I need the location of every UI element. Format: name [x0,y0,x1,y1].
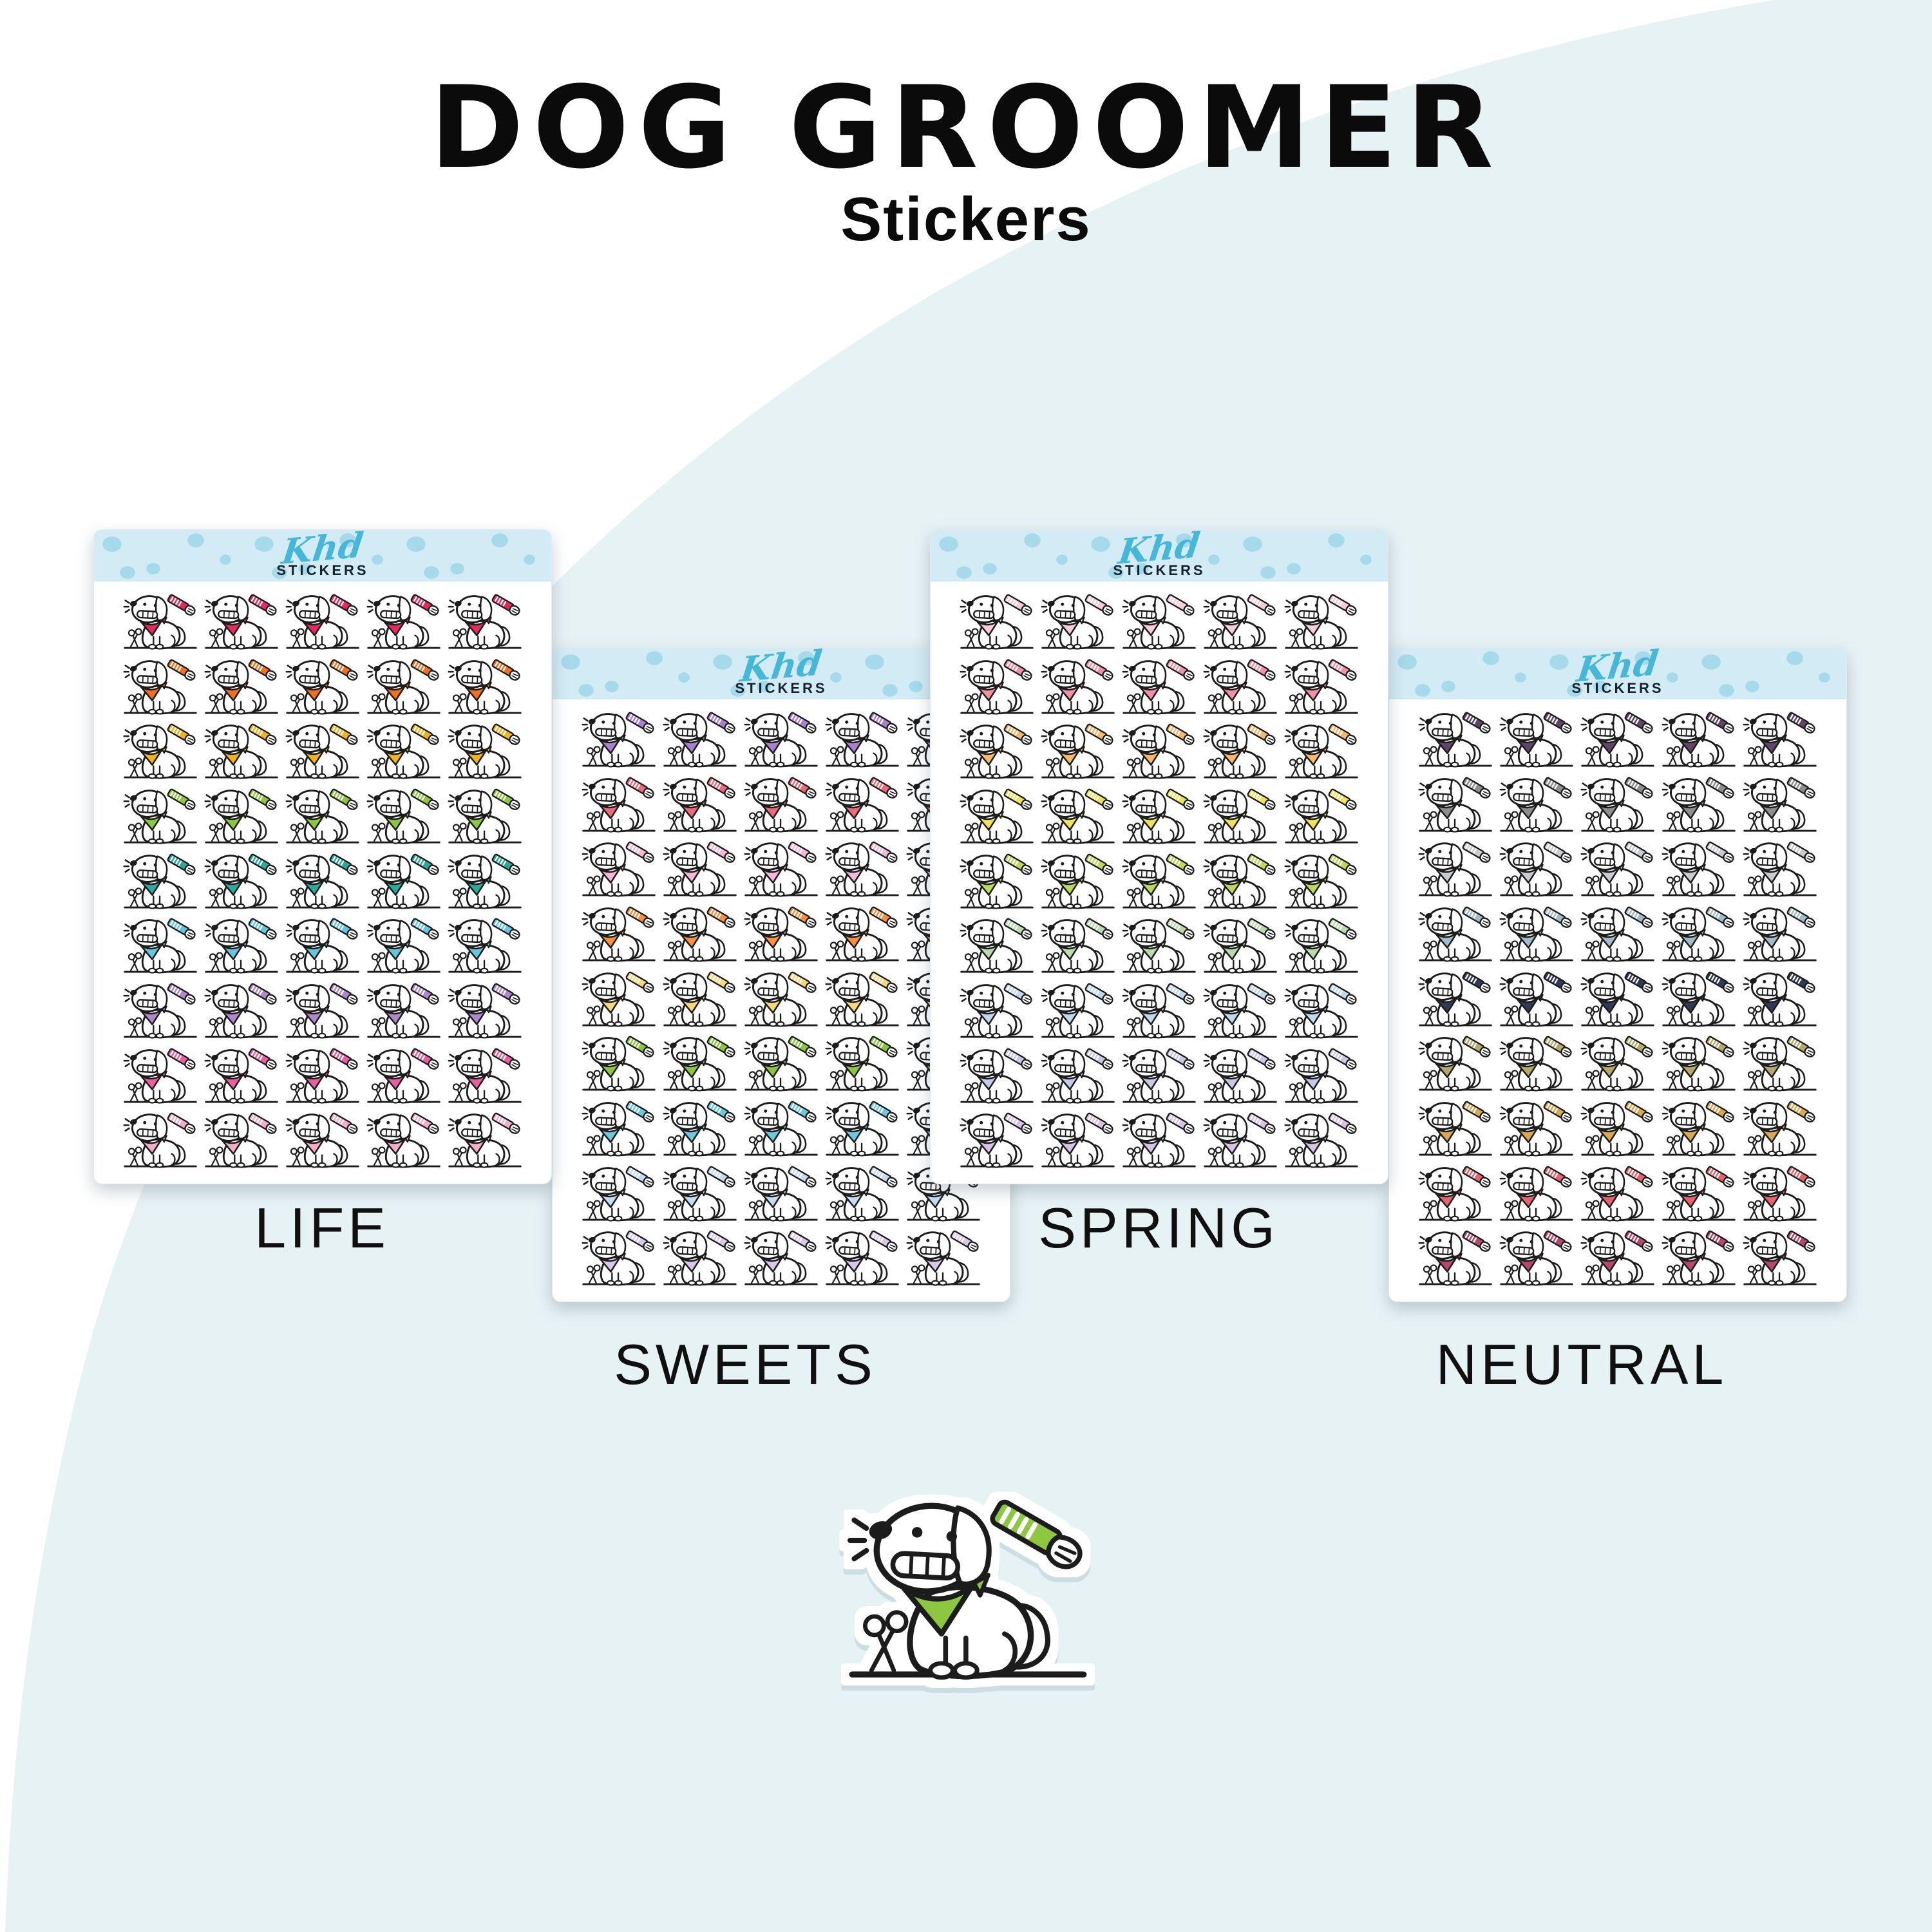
dog-groomer-sticker [282,1045,363,1110]
dog-groomer-sticker [444,1109,526,1174]
sheet-header-band: Khd STICKERS [931,530,1388,582]
dog-groomer-sticker [1200,980,1281,1045]
dog-groomer-sticker [120,850,201,915]
dog-groomer-sticker [578,1097,659,1162]
dog-groomer-sticker [741,1032,822,1097]
dog-groomer-sticker [659,1162,741,1227]
dog-groomer-sticker [1739,1162,1821,1227]
dog-groomer-sticker [1200,720,1281,785]
dog-groomer-sticker [1281,720,1362,785]
dog-groomer-sticker [1281,850,1362,915]
dog-groomer-sticker [120,980,201,1045]
dog-groomer-sticker [1496,968,1577,1033]
dog-groomer-sticker [120,1045,201,1110]
dog-groomer-sticker [363,914,444,980]
dog-groomer-sticker [822,968,903,1033]
dog-groomer-sticker [1037,1045,1119,1110]
dog-groomer-sticker [1119,785,1200,850]
dog-groomer-sticker [1415,708,1496,773]
dog-groomer-sticker [1739,773,1821,838]
dog-groomer-sticker [741,1227,822,1292]
dog-groomer-sticker [659,773,741,838]
dog-groomer-sticker [120,1109,201,1174]
dog-groomer-sticker [1200,656,1281,721]
dog-groomer-sticker [1658,773,1739,838]
dog-groomer-sticker [1658,1162,1739,1227]
dog-groomer-sticker [1415,773,1496,838]
dog-groomer-sticker [659,968,741,1033]
sheet-label-sweets: SWEETS [516,1332,974,1397]
dog-groomer-sticker [822,838,903,903]
sticker-grid-life [120,591,526,1174]
dog-groomer-sticker [1577,1227,1658,1292]
dog-groomer-sticker [1577,708,1658,773]
dog-groomer-sticker [1577,903,1658,968]
dog-groomer-sticker [956,1045,1037,1110]
dog-groomer-sticker [1281,1045,1362,1110]
dog-groomer-sticker [1119,720,1200,785]
dog-groomer-sticker [1496,1227,1577,1292]
dog-groomer-sticker [822,1162,903,1227]
dog-groomer-sticker [444,914,526,980]
dog-groomer-sticker [1037,850,1119,915]
dog-groomer-sticker [1577,968,1658,1033]
khd-logo: Khd [1575,647,1660,685]
dog-groomer-sticker [363,1045,444,1110]
dog-groomer-sticker [1577,1162,1658,1227]
dog-groomer-sticker [120,914,201,980]
dog-groomer-sticker [822,708,903,773]
dog-groomer-sticker [444,720,526,785]
dog-groomer-sticker [578,1227,659,1292]
dog-groomer-sticker [1119,1109,1200,1174]
dog-groomer-sticker [659,1097,741,1162]
hero-sticker [836,1492,1100,1698]
dog-groomer-sticker [659,838,741,903]
dog-groomer-sticker [956,850,1037,915]
sticker-sheet-neutral: Khd STICKERS [1388,647,1847,1302]
dog-groomer-sticker [201,720,282,785]
dog-groomer-sticker [201,1045,282,1110]
sticker-sheet-life: Khd STICKERS [93,529,552,1184]
dog-groomer-sticker [1037,785,1119,850]
dog-groomer-sticker [201,591,282,656]
dog-groomer-sticker [363,720,444,785]
sheet-label-spring: SPRING [930,1195,1387,1261]
dog-groomer-sticker [1496,1032,1577,1097]
dog-groomer-sticker [956,785,1037,850]
dog-groomer-sticker [1658,968,1739,1033]
dog-groomer-sticker [1496,1162,1577,1227]
dog-groomer-sticker [120,785,201,850]
dog-groomer-sticker [363,656,444,721]
dog-groomer-sticker [578,773,659,838]
dog-groomer-sticker [1037,914,1119,980]
dog-groomer-sticker [1119,914,1200,980]
dog-groomer-sticker [956,591,1037,656]
sheet-header-band: Khd STICKERS [94,530,551,582]
dog-groomer-sticker [956,720,1037,785]
dog-groomer-sticker [1658,1097,1739,1162]
dog-groomer-sticker [741,838,822,903]
dog-groomer-sticker [1037,720,1119,785]
dog-groomer-sticker [578,838,659,903]
dog-groomer-sticker [444,1045,526,1110]
dog-groomer-sticker [659,903,741,968]
dog-groomer-sticker [1415,968,1496,1033]
dog-groomer-sticker [1281,591,1362,656]
dog-groomer-sticker [444,850,526,915]
dog-groomer-sticker [1658,903,1739,968]
sticker-grid-sweets [578,708,984,1292]
dog-groomer-sticker [1496,838,1577,903]
dog-groomer-sticker [836,1492,1100,1695]
dog-groomer-sticker [1119,980,1200,1045]
dog-groomer-sticker [741,773,822,838]
dog-groomer-sticker [822,903,903,968]
dog-groomer-sticker [1496,903,1577,968]
dog-groomer-sticker [1739,708,1821,773]
dog-groomer-sticker [822,1097,903,1162]
dog-groomer-sticker [282,785,363,850]
dog-groomer-sticker [1577,1097,1658,1162]
dog-groomer-sticker [1415,838,1496,903]
dog-groomer-sticker [1281,656,1362,721]
dog-groomer-sticker [363,1109,444,1174]
dog-groomer-sticker [1037,591,1119,656]
sheet-label-neutral: NEUTRAL [1353,1332,1810,1397]
sticker-grid-neutral [1415,708,1821,1292]
dog-groomer-sticker [1577,838,1658,903]
dog-groomer-sticker [363,980,444,1045]
dog-groomer-sticker [201,656,282,721]
dog-groomer-sticker [282,980,363,1045]
dog-groomer-sticker [1281,1109,1362,1174]
dog-groomer-sticker [1200,591,1281,656]
dog-groomer-sticker [282,591,363,656]
dog-groomer-sticker [1658,1032,1739,1097]
dog-groomer-sticker [1119,591,1200,656]
dog-groomer-sticker [956,656,1037,721]
dog-groomer-sticker [1119,1045,1200,1110]
dog-groomer-sticker [1415,1162,1496,1227]
dog-groomer-sticker [578,968,659,1033]
dog-groomer-sticker [120,656,201,721]
dog-groomer-sticker [120,591,201,656]
dog-groomer-sticker [1496,708,1577,773]
dog-groomer-sticker [282,720,363,785]
khd-logo: Khd [739,647,824,685]
dog-groomer-sticker [1200,1045,1281,1110]
dog-groomer-sticker [1496,773,1577,838]
dog-groomer-sticker [741,1162,822,1227]
dog-groomer-sticker [1281,914,1362,980]
dog-groomer-sticker [1415,1032,1496,1097]
page-title: DOG GROOMER [0,62,1932,194]
dog-groomer-sticker [741,903,822,968]
page-subtitle: Stickers [0,184,1932,255]
dog-groomer-sticker [1281,980,1362,1045]
dog-groomer-sticker [201,850,282,915]
dog-groomer-sticker [363,591,444,656]
dog-groomer-sticker [822,773,903,838]
dog-groomer-sticker [282,914,363,980]
dog-groomer-sticker [1577,773,1658,838]
dog-groomer-sticker [1037,1109,1119,1174]
dog-groomer-sticker [1119,850,1200,915]
dog-groomer-sticker [1037,980,1119,1045]
dog-groomer-sticker [1415,1227,1496,1292]
dog-groomer-sticker [1658,1227,1739,1292]
dog-groomer-sticker [444,656,526,721]
dog-groomer-sticker [1739,1032,1821,1097]
dog-groomer-sticker [1658,708,1739,773]
dog-groomer-sticker [741,968,822,1033]
dog-groomer-sticker [201,785,282,850]
dog-groomer-sticker [741,1097,822,1162]
dog-groomer-sticker [578,1032,659,1097]
dog-groomer-sticker [1415,1097,1496,1162]
dog-groomer-sticker [1200,850,1281,915]
dog-groomer-sticker [1739,838,1821,903]
dog-groomer-sticker [201,980,282,1045]
dog-groomer-sticker [1119,656,1200,721]
dog-groomer-sticker [1037,656,1119,721]
dog-groomer-sticker [956,1109,1037,1174]
dog-groomer-sticker [120,720,201,785]
dog-groomer-sticker [1739,1227,1821,1292]
dog-groomer-sticker [444,591,526,656]
sheet-label-life: LIFE [93,1195,551,1261]
sticker-sheet-spring: Khd STICKERS [930,529,1388,1184]
sticker-grid-spring [956,591,1362,1174]
dog-groomer-sticker [444,785,526,850]
dog-groomer-sticker [363,785,444,850]
dog-groomer-sticker [1415,903,1496,968]
dog-groomer-sticker [1739,968,1821,1033]
dog-groomer-sticker [201,914,282,980]
dog-groomer-sticker [1658,838,1739,903]
dog-groomer-sticker [282,656,363,721]
dog-groomer-sticker [1281,785,1362,850]
dog-groomer-sticker [1577,1032,1658,1097]
dog-groomer-sticker [282,850,363,915]
dog-groomer-sticker [956,914,1037,980]
dog-groomer-sticker [444,980,526,1045]
dog-groomer-sticker [1200,785,1281,850]
dog-groomer-sticker [1739,903,1821,968]
dog-groomer-sticker [659,708,741,773]
dog-groomer-sticker [1200,1109,1281,1174]
dog-groomer-sticker [956,980,1037,1045]
product-image: DOG GROOMER Stickers Khd STICKERS Khd ST… [0,0,1932,1932]
dog-groomer-sticker [282,1109,363,1174]
dog-groomer-sticker [578,708,659,773]
dog-groomer-sticker [659,1227,741,1292]
dog-groomer-sticker [578,903,659,968]
dog-groomer-sticker [1200,914,1281,980]
dog-groomer-sticker [659,1032,741,1097]
dog-groomer-sticker [201,1109,282,1174]
dog-groomer-sticker [363,850,444,915]
khd-logo: Khd [280,529,365,567]
dog-groomer-sticker [741,708,822,773]
dog-groomer-sticker [1739,1097,1821,1162]
dog-groomer-sticker [822,1032,903,1097]
sheet-header-band: Khd STICKERS [1389,648,1846,699]
dog-groomer-sticker [1496,1097,1577,1162]
dog-groomer-sticker [822,1227,903,1292]
khd-logo: Khd [1117,529,1202,567]
dog-groomer-sticker [578,1162,659,1227]
